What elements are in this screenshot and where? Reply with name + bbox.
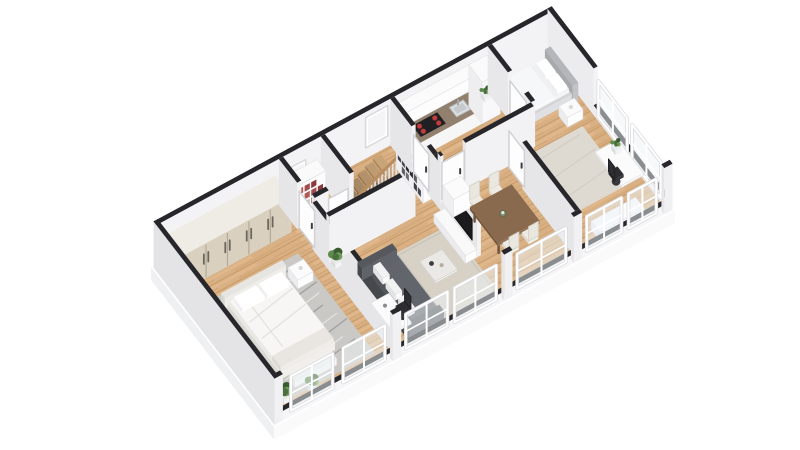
floor-plan-3d-render: [0, 0, 800, 450]
floor-plan-figure: [0, 0, 800, 450]
floor-plan-page: [0, 0, 800, 450]
